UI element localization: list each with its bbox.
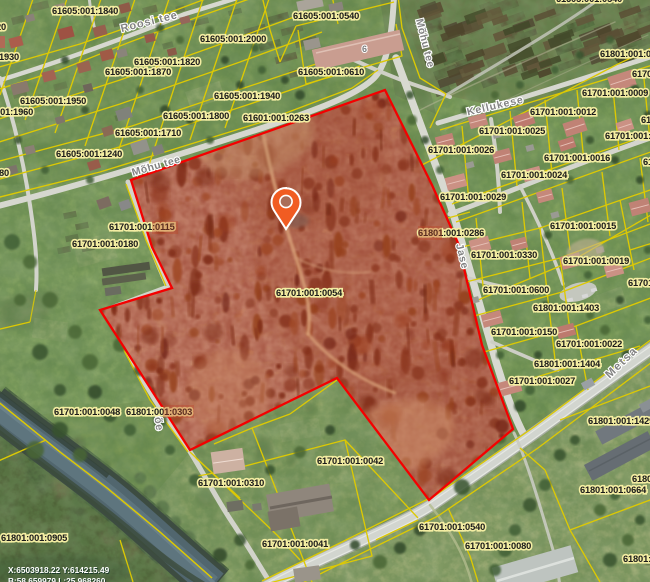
svg-text:X:6503918.22 Y:614215.49: X:6503918.22 Y:614215.49 (8, 565, 110, 575)
svg-text:6: 6 (362, 44, 367, 54)
svg-text:61701:001:0029: 61701:001:0029 (440, 192, 506, 202)
svg-text:61605:001:1820: 61605:001:1820 (134, 57, 200, 67)
svg-text:61605:001:1950: 61605:001:1950 (20, 96, 86, 106)
svg-text:61701:001:0330: 61701:001:0330 (471, 250, 537, 260)
svg-text:61605:001:0540: 61605:001:0540 (293, 11, 359, 21)
svg-text:61701:001:0041: 61701:001:0041 (262, 539, 328, 549)
svg-text:61701:001:0150: 61701:001:0150 (491, 327, 557, 337)
svg-text:280: 280 (0, 168, 9, 178)
svg-text:61701:001:0022: 61701:001:0022 (556, 339, 622, 349)
svg-text:61701:001:0080: 61701:001:0080 (465, 541, 531, 551)
svg-text:61801:001:0664: 61801:001:0664 (580, 485, 647, 495)
svg-text:61605:001:0610: 61605:001:0610 (298, 67, 364, 77)
svg-text:61605:001:1960: 61605:001:1960 (0, 107, 33, 117)
svg-text:61701:001:0009: 61701:001:0009 (582, 88, 648, 98)
svg-text:61801:001:0014: 61801:001:0014 (600, 49, 650, 59)
svg-text:61701:001:0310: 61701:001:0310 (198, 478, 264, 488)
svg-text:61701:001:0026: 61701:001:0026 (428, 145, 494, 155)
svg-text:61605:001:1710: 61605:001:1710 (115, 128, 181, 138)
svg-text:61701:001:0048: 61701:001:0048 (54, 407, 120, 417)
svg-text:61801:001:1404: 61801:001:1404 (534, 359, 601, 369)
svg-text:61605:001:1240: 61605:001:1240 (56, 149, 122, 159)
svg-text:61701:001:0027: 61701:001:0027 (509, 376, 575, 386)
svg-text:61701:001:0540: 61701:001:0540 (419, 522, 485, 532)
svg-text:61701:001:0042: 61701:001:0042 (317, 456, 383, 466)
svg-text:61701:001:0019: 61701:001:0019 (563, 256, 629, 266)
svg-text:61801:001:0: 61801:001:0 (623, 554, 650, 564)
svg-text:61701:001:0015: 61701:001:0015 (550, 221, 616, 231)
svg-text:61701:001:0025: 61701:001:0025 (479, 126, 545, 136)
svg-text:61701:001:0012: 61701:001:0012 (530, 107, 596, 117)
svg-text:61701:001:0600: 61701:001:0600 (483, 285, 549, 295)
svg-text:61701:001:0024: 61701:001:0024 (501, 170, 568, 180)
svg-text:B:58.659979 L:25.968260: B:58.659979 L:25.968260 (8, 576, 106, 582)
svg-text:61701:001:0600: 61701:001:0600 (628, 278, 650, 288)
svg-text:6:20: 6:20 (0, 22, 6, 32)
svg-text:61801:001:0668: 61801:001:0668 (632, 474, 650, 484)
svg-text:61701:001:0002: 61701:001:0002 (632, 69, 650, 79)
svg-text:61605:001:1800: 61605:001:1800 (163, 111, 229, 121)
svg-text:61605:001:0540: 61605:001:0540 (556, 0, 622, 4)
svg-text:1:1930: 1:1930 (0, 52, 19, 62)
svg-text:61605:001:1870: 61605:001:1870 (105, 67, 171, 77)
svg-text:61801:001:1429: 61801:001:1429 (588, 416, 650, 426)
svg-text:61605:001:1940: 61605:001:1940 (214, 91, 280, 101)
svg-text:61701:001:0013: 61701:001:0013 (605, 131, 650, 141)
svg-text:61701:001:0016: 61701:001:0016 (544, 153, 610, 163)
svg-text:61605:001:2000: 61605:001:2000 (200, 34, 266, 44)
svg-text:61: 61 (643, 157, 650, 167)
svg-text:61605:001:1840: 61605:001:1840 (52, 6, 118, 16)
svg-text:61601:001:0263: 61601:001:0263 (243, 113, 309, 123)
svg-text:61701:001:0180: 61701:001:0180 (72, 239, 138, 249)
svg-text:61801:001:0905: 61801:001:0905 (1, 533, 67, 543)
svg-text:61701:001:0054: 61701:001:0054 (276, 288, 343, 298)
svg-text:6180: 6180 (641, 115, 650, 125)
svg-text:61801:001:1403: 61801:001:1403 (533, 303, 599, 313)
